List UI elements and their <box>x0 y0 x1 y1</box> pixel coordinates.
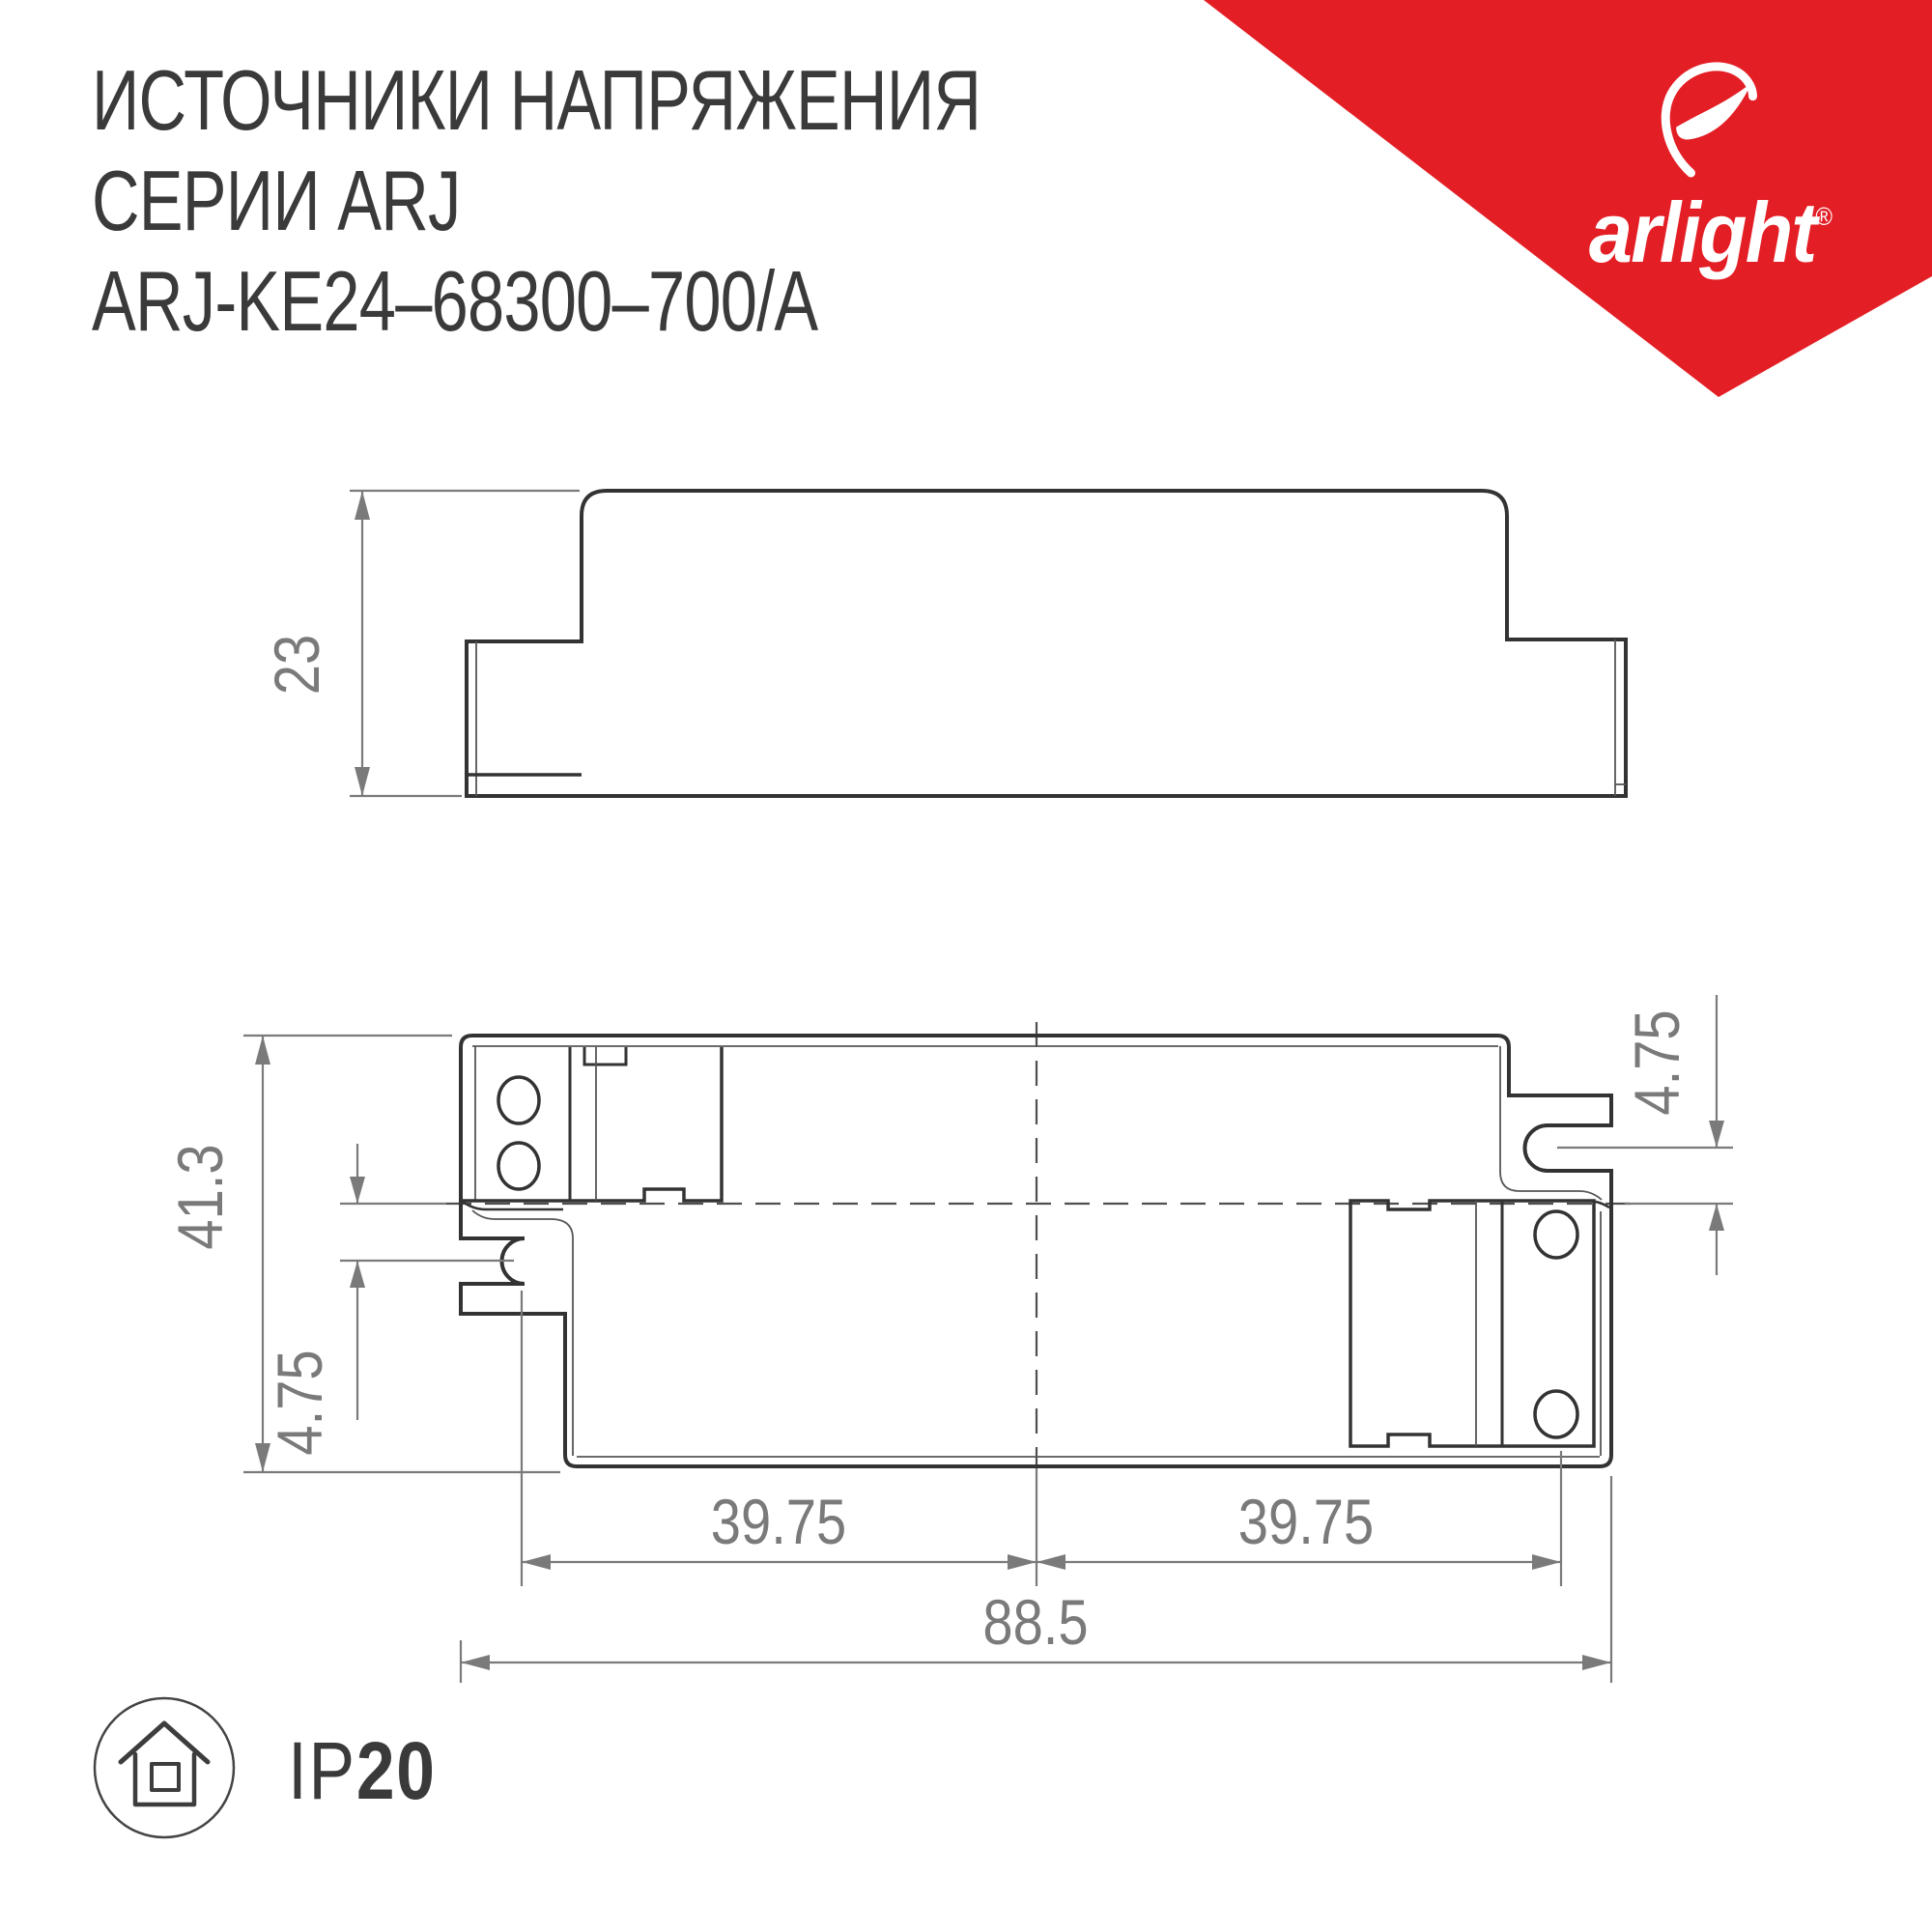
arrow-left-icon <box>522 1554 551 1570</box>
dimension-label-88-5: 88.5 <box>982 1587 1088 1658</box>
screw-hole <box>1535 1211 1577 1258</box>
datasheet-page: { "header": { "line1": "ИСТОЧНИКИ НАПРЯЖ… <box>0 0 1932 1932</box>
dimension-label-41-3: 41.3 <box>165 1144 236 1249</box>
dimension-label-4-75-right: 4.75 <box>1622 1009 1692 1115</box>
dimension-label-39-75-left: 39.75 <box>711 1487 846 1557</box>
arrow-right-icon <box>1532 1554 1561 1570</box>
mounting-plate-bottom-right <box>1350 1201 1594 1446</box>
dimension-slot-offset-left: 4.75 <box>265 1144 514 1456</box>
arrow-up-icon <box>255 1036 270 1065</box>
arrow-up-icon <box>350 1261 365 1288</box>
screw-hole <box>1535 1391 1577 1437</box>
arrow-down-icon <box>1709 1121 1724 1148</box>
arrow-down-icon <box>355 767 370 796</box>
arrow-right-icon <box>1582 1655 1611 1670</box>
arrow-left-icon <box>461 1655 490 1670</box>
dimension-label-39-75-right: 39.75 <box>1238 1487 1374 1557</box>
arrow-down-icon <box>350 1177 365 1204</box>
arrow-right-icon <box>1008 1554 1037 1570</box>
dimension-label-23: 23 <box>262 635 332 695</box>
arrow-left-icon <box>1037 1554 1065 1570</box>
dimension-slot-offset-right: 4.75 <box>1557 995 1733 1275</box>
dimension-label-4-75-left: 4.75 <box>265 1350 335 1455</box>
screw-hole <box>498 1143 539 1189</box>
indoor-house-icon <box>121 1723 208 1804</box>
technical-drawing: 23 <box>0 0 1932 1932</box>
ip-rating-text: IP20 <box>288 1724 437 1816</box>
arrow-up-icon <box>1709 1204 1724 1231</box>
dimension-slot-spacing: 39.75 39.75 <box>522 1291 1561 1586</box>
badge-circle <box>95 1698 234 1837</box>
arrow-up-icon <box>355 491 370 520</box>
side-view <box>467 491 1626 796</box>
ip-rating-badge: IP20 <box>95 1698 437 1837</box>
mounting-plate-top-left <box>461 1047 722 1201</box>
bottom-view <box>446 1022 1631 1468</box>
screw-hole <box>498 1077 539 1123</box>
